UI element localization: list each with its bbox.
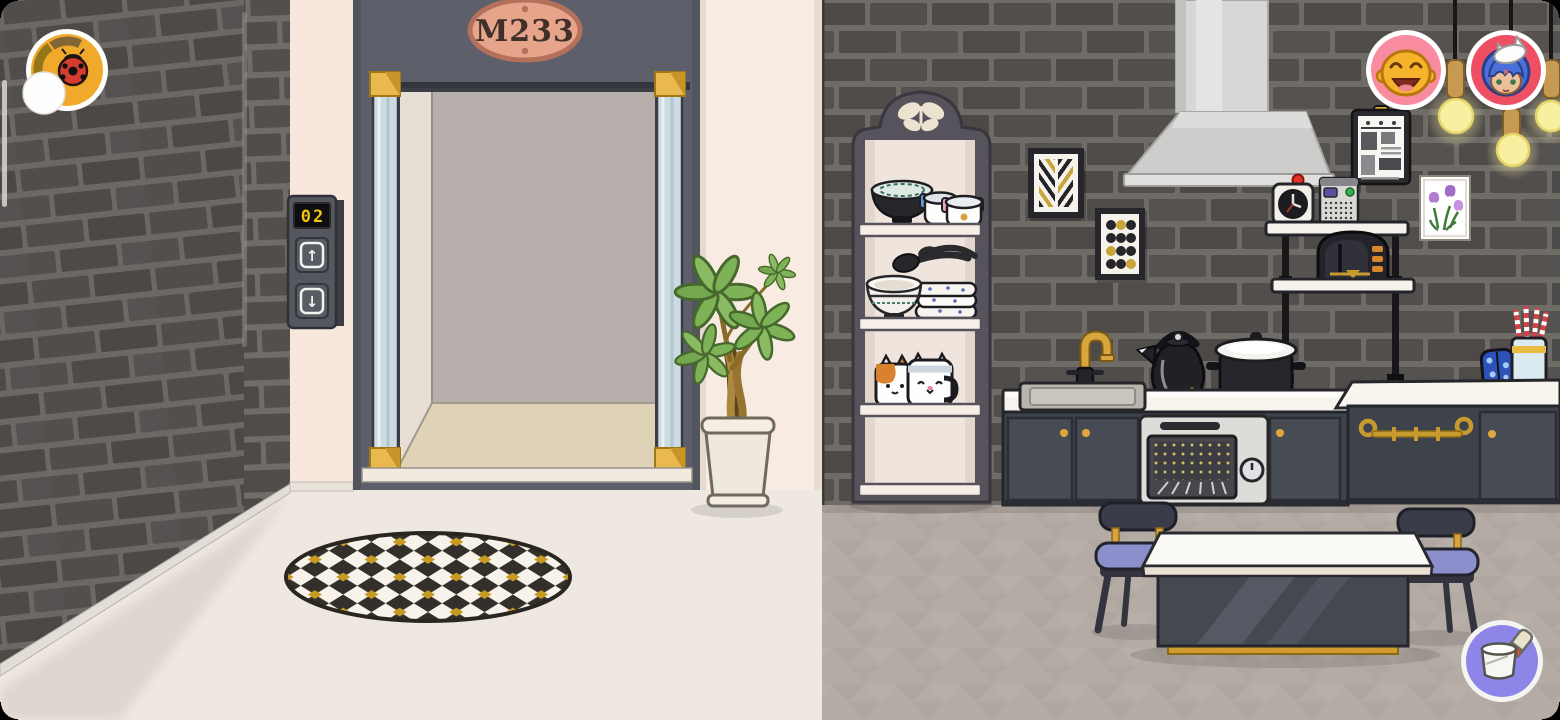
plaque-text: M233 [475,14,575,49]
elevator-up-button[interactable]: ↑ [296,238,328,272]
clipboard[interactable] [1352,106,1410,184]
cat-mugs[interactable] [876,354,956,406]
bulb-icon [1536,101,1560,131]
elevator-call-panel[interactable]: 02 ↑ ↓ [288,196,344,328]
scroll-handle-icon[interactable] [2,80,7,207]
floor-display: 02 [301,207,325,227]
customize-button[interactable] [1461,620,1543,702]
avatar-button-1[interactable] [1366,30,1446,110]
down-arrow-icon: ↓ [306,293,319,311]
butterfly-shelf[interactable] [849,92,993,514]
up-arrow-icon: ↑ [306,247,319,265]
cabinets-right[interactable] [1348,406,1560,504]
bulb-icon [1497,134,1529,166]
lunch-containers[interactable] [920,193,983,227]
apartment-plaque[interactable]: M233 [470,0,580,60]
dining-table[interactable] [1143,533,1432,654]
bulb-icon [1439,99,1473,133]
shelf-board-lower [1272,279,1414,292]
dots-art-frame[interactable] [1095,208,1145,280]
radio[interactable] [1320,178,1358,224]
chevron-pattern-left [1039,159,1055,207]
screen-corner [0,0,18,18]
game-room-scene: M233 02 ↑ ↓ [0,0,1560,720]
avatar-button-2[interactable] [1466,30,1546,110]
screen-corner [1542,0,1560,18]
tulip-frame[interactable] [1420,176,1470,240]
plate-stack[interactable] [916,283,976,318]
toaster[interactable] [1318,232,1388,280]
elevator-glass-right [655,72,685,472]
elevator[interactable]: M233 [353,0,700,490]
chevron-pattern-right [1058,159,1074,207]
sink[interactable] [1020,383,1145,410]
elevator-down-button[interactable]: ↓ [296,284,328,318]
checkered-rug[interactable] [286,533,570,621]
elevator-glass-left [370,72,400,472]
built-in-oven[interactable] [1140,416,1268,504]
chevron-art-frame[interactable] [1028,148,1084,218]
countertop-right [1336,380,1560,408]
screen-corner [1542,702,1560,720]
screen-corner [0,702,18,720]
notification-circle[interactable] [23,72,65,114]
wall-clock[interactable] [1273,184,1313,224]
elevator-interior[interactable] [398,90,657,470]
